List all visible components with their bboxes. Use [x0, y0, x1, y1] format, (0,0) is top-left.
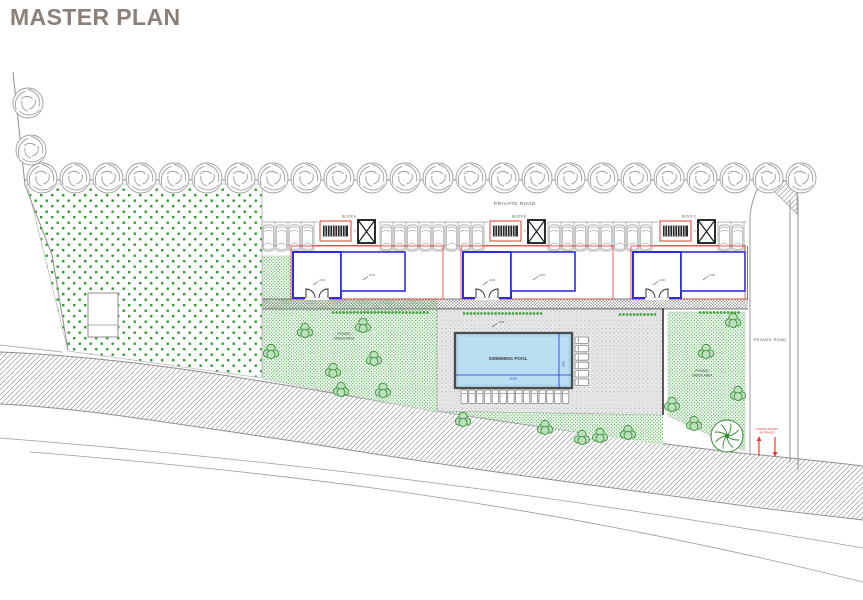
sun-lounger [500, 390, 506, 404]
unit-room-right [341, 252, 405, 291]
hedge-plant [654, 313, 656, 315]
tree [13, 135, 46, 167]
hedge-plant [622, 313, 624, 315]
hedge-plant [402, 311, 404, 313]
hedge-plant [374, 311, 376, 313]
hedge-plant [346, 311, 348, 313]
block-label: BLOCK A [342, 215, 357, 219]
walkway [262, 299, 748, 309]
hedge-plant [388, 311, 390, 313]
hedge-plant [335, 311, 337, 313]
hedge-plant [423, 311, 425, 313]
unit-room-left [463, 252, 511, 298]
sun-lounger [575, 337, 589, 343]
sun-lounger [531, 390, 537, 404]
sun-lounger [469, 390, 475, 404]
core-sublabel: a [354, 229, 356, 233]
hedge-plant [332, 311, 334, 313]
hedge-plant [540, 312, 542, 314]
parked-car [640, 225, 650, 251]
sun-lounger [575, 345, 589, 351]
unit-room-left [293, 252, 341, 298]
parked-car [446, 225, 456, 251]
hedge-plant [713, 311, 715, 313]
sun-lounger [562, 390, 568, 404]
hedge-plant [339, 311, 341, 313]
green-area-right-label-2: GREEN AREA [692, 374, 714, 378]
tree [684, 163, 717, 195]
hedge-plant [515, 312, 517, 314]
parked-car [394, 225, 404, 251]
hedge-plant [633, 313, 635, 315]
hedge-plant [480, 312, 482, 314]
hedge-plant [508, 312, 510, 314]
hedge-plant [391, 311, 393, 313]
hedge-plant [647, 313, 649, 315]
green-area-left-label-2: GREEN AREA [334, 337, 356, 341]
sun-lounger [547, 390, 553, 404]
level-marker-label: +0.00 [319, 278, 326, 282]
hedge-plant [533, 312, 535, 314]
hedge-plant [723, 311, 725, 313]
sun-lounger [516, 390, 522, 404]
hedge-plant [470, 312, 472, 314]
private-road-right-label: PRIVATE ROAD [754, 337, 787, 342]
block-label: BLOCK B [512, 215, 526, 219]
master-plan-page: MASTER PLAN [0, 0, 863, 600]
parked-car [433, 225, 443, 251]
green-area-right-label-1: PRIVATE [695, 369, 708, 373]
swimming-pool: SWIMMING POOL 15.00 5.00 [455, 333, 572, 388]
parked-car [601, 225, 611, 251]
contour-line-3 [0, 345, 62, 352]
hedge-plant [412, 311, 414, 313]
hedge-plant [419, 311, 421, 313]
stairs [323, 226, 348, 237]
hedge-plant [706, 311, 708, 313]
hedge-plant [384, 311, 386, 313]
hedge-plant [377, 311, 379, 313]
parked-car [588, 225, 598, 251]
tree [486, 163, 519, 195]
unit-room-right [681, 252, 745, 291]
hedge-plant [409, 311, 411, 313]
hedge-plant [363, 311, 365, 313]
hedge-plant [498, 312, 500, 314]
hedge-plant [702, 311, 704, 313]
hedge-plant [737, 311, 739, 313]
sun-lounger [461, 390, 467, 404]
parked-car [472, 225, 482, 251]
hedge-plant [466, 312, 468, 314]
level-marker-label: +0.00 [539, 273, 546, 277]
big-tree [711, 420, 743, 452]
parked-car [381, 225, 391, 251]
hedge-plant [526, 312, 528, 314]
hedge-plant [536, 312, 538, 314]
stairs [663, 226, 688, 237]
door-opening [645, 296, 669, 301]
hedge-plant [512, 312, 514, 314]
tree [618, 163, 651, 195]
tree [519, 163, 552, 195]
sun-lounger [523, 390, 529, 404]
tree [420, 163, 453, 195]
sun-lounger [492, 390, 498, 404]
hedge-plant [643, 313, 645, 315]
unit-room-left [633, 252, 681, 298]
hedge-plant [640, 313, 642, 315]
sun-lounger [484, 390, 490, 404]
hedge-plant [727, 311, 729, 313]
hedge-plant [353, 311, 355, 313]
entrance-label-2: ENTRANCE [760, 431, 775, 435]
sun-lounger [575, 354, 589, 360]
arrow-up-head [757, 436, 762, 441]
level-marker-label: +0.00 [659, 278, 666, 282]
sun-lounger [575, 362, 589, 368]
parked-car [407, 225, 417, 251]
door-opening [475, 296, 499, 301]
parked-car [575, 225, 585, 251]
sun-lounger [555, 390, 561, 404]
hedge-plant [650, 313, 652, 315]
tree [651, 163, 684, 195]
parked-car [549, 225, 559, 251]
hedge-plant [529, 312, 531, 314]
site-plan-drawing: BLOCK AaBLOCK BaBLOCK Ca SWIMMING POOL 1… [0, 0, 863, 600]
parked-car [263, 225, 273, 251]
hedge-plant [349, 311, 351, 313]
green-area-left-label-1: PRIVATE [337, 332, 350, 336]
parked-car [420, 225, 430, 251]
hedge-plant [487, 312, 489, 314]
entrance-arrows [757, 436, 778, 457]
core-sublabel: a [694, 229, 696, 233]
block-label: BLOCK C [682, 215, 697, 219]
hedge-plant [636, 313, 638, 315]
hedge-plant [709, 311, 711, 313]
hedge-plant [720, 311, 722, 313]
sun-lounger [477, 390, 483, 404]
sun-lounger [508, 390, 514, 404]
hedge-plant [522, 312, 524, 314]
hedge-plant [716, 311, 718, 313]
level-marker-label: +0.00 [489, 278, 496, 282]
parked-car [302, 225, 312, 251]
tree [552, 163, 585, 195]
hedge-plant [519, 312, 521, 314]
level-marker-label: +0.00 [369, 273, 376, 277]
tree [354, 163, 387, 195]
core-sublabel: a [524, 229, 526, 233]
hedge-plant [477, 312, 479, 314]
hedge-plant [395, 311, 397, 313]
parked-car [719, 225, 729, 251]
hedge-plant [342, 311, 344, 313]
entrance-label-1: PRIVATE ROAD'S [756, 427, 778, 431]
hedge-plant [405, 311, 407, 313]
parked-car [562, 225, 572, 251]
pool-dim-w-label: 15.00 [509, 377, 517, 381]
hedge-plant [626, 313, 628, 315]
parked-car [276, 225, 286, 251]
hedge-plant [484, 312, 486, 314]
pool-label: SWIMMING POOL [489, 356, 528, 361]
hedge-plant [501, 312, 503, 314]
pool-dim-h-label: 5.00 [562, 361, 566, 367]
private-road-top-label: PRIVATE ROAD [494, 201, 536, 207]
hedge-plant [629, 313, 631, 315]
field-structure [88, 293, 118, 337]
stairs [493, 226, 518, 237]
hedge-plant [491, 312, 493, 314]
tree [585, 163, 618, 195]
level-marker-label: +0.00 [498, 320, 505, 324]
hedge-plant [398, 311, 400, 313]
tree [453, 163, 486, 195]
road-inner-line [750, 181, 762, 455]
sun-lounger [575, 371, 589, 377]
hedge-plant [367, 311, 369, 313]
level-marker-label: +0.00 [709, 273, 716, 277]
hedge-plant [463, 312, 465, 314]
tree [387, 163, 420, 195]
hedge-plant [416, 311, 418, 313]
left-planted-field [27, 184, 262, 378]
unit-room-right [511, 252, 575, 291]
big-tree-trunk [725, 434, 729, 438]
tree [321, 163, 354, 195]
sun-lounger [575, 379, 589, 385]
hedge-plant [699, 311, 701, 313]
tree [288, 163, 321, 195]
buildings: BLOCK AaBLOCK BaBLOCK Ca [291, 215, 745, 301]
hedge-plant [494, 312, 496, 314]
hedge-plant [370, 311, 372, 313]
parked-car [614, 225, 624, 251]
parked-car [732, 225, 742, 251]
hedge-plant [360, 311, 362, 313]
parked-car [627, 225, 637, 251]
hedge-plant [473, 312, 475, 314]
hedge-plant [619, 313, 621, 315]
hedge-plant [381, 311, 383, 313]
hedge-plant [426, 311, 428, 313]
tree [717, 163, 750, 195]
door-opening [305, 296, 329, 301]
sun-lounger [539, 390, 545, 404]
hedge-plant [356, 311, 358, 313]
tree-row [10, 88, 816, 195]
hedge-plant [505, 312, 507, 314]
